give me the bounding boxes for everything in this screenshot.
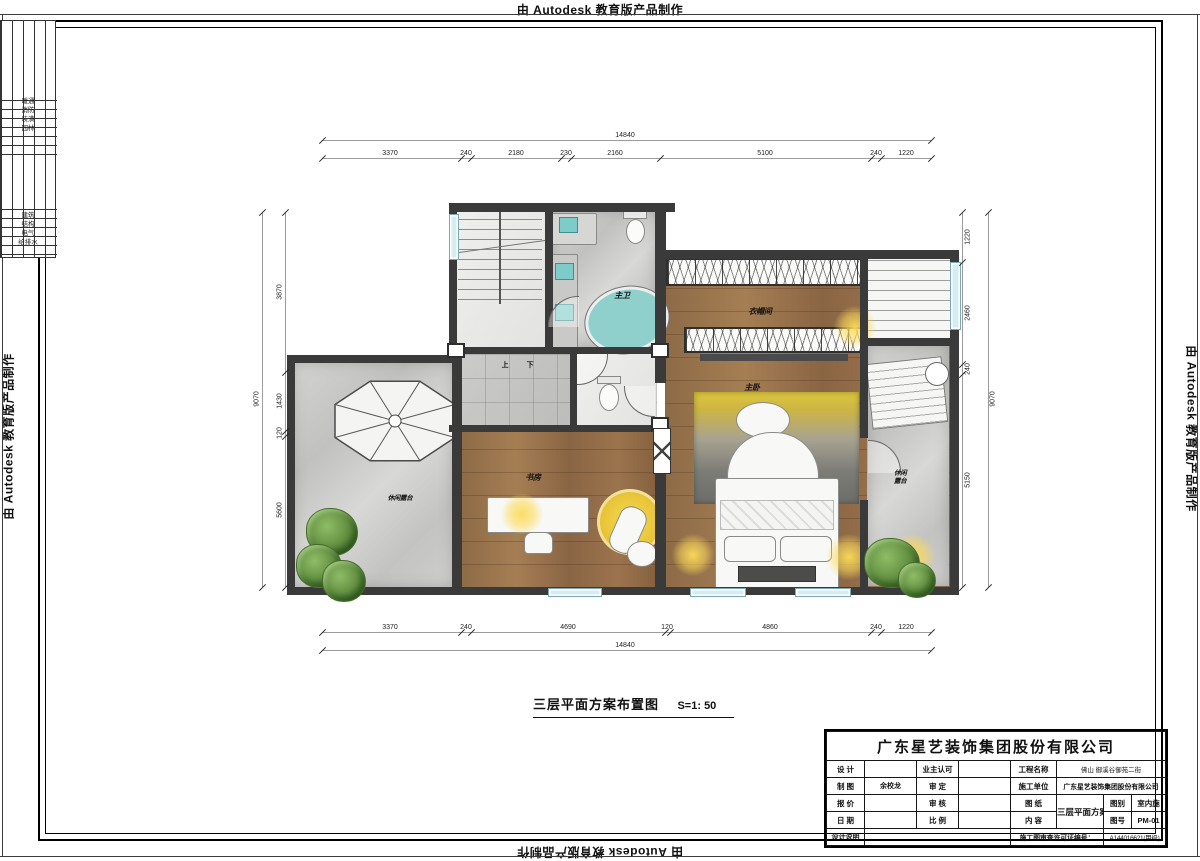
room-label-master-bath: 主卫 — [614, 290, 629, 301]
column — [447, 343, 465, 358]
dim-line — [262, 212, 263, 587]
field-owner-value — [959, 761, 1011, 778]
dim-value: 2180 — [507, 150, 525, 157]
dim-value: 4690 — [559, 624, 577, 631]
field-project-value: 佛山 御溪谷御苑二街 — [1057, 761, 1166, 778]
column-x-hatch — [653, 428, 671, 474]
field-notes: 设计说明 — [827, 829, 865, 846]
dim-value: 1220 — [897, 150, 915, 157]
dim-value: 3370 — [381, 150, 399, 157]
field-design: 设 计 — [827, 761, 865, 778]
dim-value: 3870 — [277, 283, 284, 301]
dim-value: 2460 — [965, 304, 972, 322]
window — [950, 262, 961, 330]
dim-value: 240 — [869, 624, 883, 631]
dim-line — [322, 158, 931, 159]
wall-segment — [449, 425, 665, 432]
stair-down-label: 下 — [527, 360, 534, 370]
field-design-value — [865, 761, 917, 778]
window — [690, 588, 746, 597]
toilet-bowl — [626, 219, 645, 244]
lounge-chair-footrest — [627, 541, 657, 567]
dim-value: 3370 — [381, 624, 399, 631]
wall-segment — [545, 205, 553, 349]
dim-value: 230 — [559, 150, 573, 157]
dim-line — [322, 632, 931, 633]
sink-basin — [555, 263, 574, 280]
field-builder-value: 广东星艺装饰集团股份有限公司 — [1057, 778, 1166, 795]
company-name: 广东星艺装饰集团股份有限公司 — [827, 732, 1166, 761]
field-category: 图别 — [1104, 795, 1132, 812]
field-check: 审 核 — [917, 795, 959, 812]
wall-segment — [860, 346, 868, 438]
drawing-title: 三层平面方案布置图 — [533, 697, 659, 712]
field-approve: 审 定 — [917, 778, 959, 795]
dim-value: 240 — [459, 624, 473, 631]
field-date: 日 期 — [827, 812, 865, 829]
wall-segment — [287, 355, 295, 595]
field-number-value: PM-01 — [1132, 812, 1166, 829]
dim-value: 240 — [965, 362, 972, 376]
field-owner-approval: 业主认可 — [917, 761, 959, 778]
discipline-struct: 结构 — [7, 221, 49, 229]
discipline-fire: 消防 — [7, 107, 49, 115]
pillow — [780, 536, 832, 562]
field-paper: 图 纸 — [1011, 795, 1057, 812]
stair-up-label: 上 — [502, 360, 509, 370]
field-ratio-value — [959, 812, 1011, 829]
field-content: 内 容 — [1011, 812, 1057, 829]
dim-value: 2160 — [606, 150, 624, 157]
sink-basin — [559, 217, 578, 233]
dim-value: 14840 — [614, 132, 635, 139]
discipline-elec: 电气 — [7, 230, 49, 238]
field-sheet-name: 三层平面方案布置图 — [1057, 795, 1104, 829]
dim-value: 1430 — [277, 392, 284, 410]
drawing-scale: S=1: 50 — [677, 700, 716, 712]
wall-segment — [860, 252, 868, 344]
bed-blanket — [720, 500, 834, 530]
dim-value: 5100 — [756, 150, 774, 157]
room-label-terrace-right: 休闲露台 — [894, 470, 910, 486]
field-notes-value — [865, 829, 1011, 846]
side-table — [925, 362, 949, 386]
dim-value: 240 — [459, 150, 473, 157]
discipline-table: 暖通 消防 装潢 园林 建筑 结构 电气 给排水 — [0, 20, 56, 258]
dim-value: 9070 — [990, 390, 997, 408]
discipline-decor: 装潢 — [7, 116, 49, 124]
toilet-bowl — [599, 384, 619, 411]
desk-chair — [524, 532, 553, 554]
dim-value: 4860 — [761, 624, 779, 631]
field-check-value — [959, 795, 1011, 812]
gazebo-parasol — [328, 376, 462, 466]
dim-line — [322, 140, 931, 141]
column — [651, 343, 669, 358]
field-permit-value: A144016621(甲级) — [1104, 829, 1166, 846]
field-quote-value — [865, 795, 917, 812]
field-draft: 制 图 — [827, 778, 865, 795]
dim-value: 5150 — [965, 471, 972, 489]
dim-value: 1220 — [965, 228, 972, 246]
field-ratio: 比 例 — [917, 812, 959, 829]
dim-value: 1220 — [897, 624, 915, 631]
cad-sheet: { "watermark": "由 Autodesk 教育版产品制作", "di… — [0, 0, 1200, 859]
wall-segment — [570, 349, 577, 427]
dim-value: 14840 — [614, 642, 635, 649]
discipline-landscape: 园林 — [7, 125, 49, 133]
window — [795, 588, 851, 597]
room-label-terrace-left: 休闲露台 — [388, 492, 413, 502]
field-date-value — [865, 812, 917, 829]
discipline-hvac: 暖通 — [7, 98, 49, 106]
nightstand-lamp-glow — [672, 534, 714, 576]
room-label-closet: 衣帽间 — [748, 306, 771, 317]
tree — [322, 560, 366, 602]
tv-shelf — [700, 354, 848, 361]
field-draft-value: 余校龙 — [865, 778, 917, 795]
room-label-study: 书房 — [525, 472, 540, 483]
wall-segment — [287, 355, 459, 363]
field-quote: 报 价 — [827, 795, 865, 812]
window — [548, 588, 602, 597]
field-builder: 施工单位 — [1011, 778, 1057, 795]
stair-stringer — [499, 212, 501, 304]
foot-bench — [738, 566, 816, 582]
field-permit: 施工图审查许可证编号： — [1011, 829, 1104, 846]
pillow — [724, 536, 776, 562]
toilet-tank — [623, 211, 647, 219]
field-approve-value — [959, 778, 1011, 795]
dim-value: 5600 — [277, 501, 284, 519]
discipline-plumb: 给排水 — [7, 239, 49, 247]
wall-segment — [449, 203, 675, 212]
wall-segment — [664, 250, 959, 259]
field-number: 图号 — [1104, 812, 1132, 829]
drawing-title-block: 三层平面方案布置图 S=1: 50 — [533, 694, 734, 718]
tree — [898, 562, 936, 598]
dim-value: 9070 — [254, 390, 261, 408]
discipline-arch: 建筑 — [7, 212, 49, 220]
window — [449, 214, 459, 260]
wardrobe — [666, 258, 862, 286]
wall-segment — [287, 587, 959, 595]
wall-segment — [452, 355, 462, 595]
dim-line — [322, 650, 931, 651]
dim-value: 240 — [869, 150, 883, 157]
dim-line — [285, 212, 286, 587]
title-block: 广东星艺装饰集团股份有限公司 设 计 业主认可 工程名称 佛山 御溪谷御苑二街 … — [824, 729, 1168, 848]
toilet-tank — [597, 376, 621, 384]
room-label-master-bedroom: 主卧 — [744, 382, 759, 393]
desk-lamp-glow — [500, 494, 544, 534]
closet-shelves — [867, 258, 951, 342]
field-project: 工程名称 — [1011, 761, 1057, 778]
field-category-value: 室内施 — [1132, 795, 1166, 812]
wall-segment — [449, 347, 665, 354]
wall-segment — [860, 338, 959, 346]
dim-line — [962, 212, 963, 587]
